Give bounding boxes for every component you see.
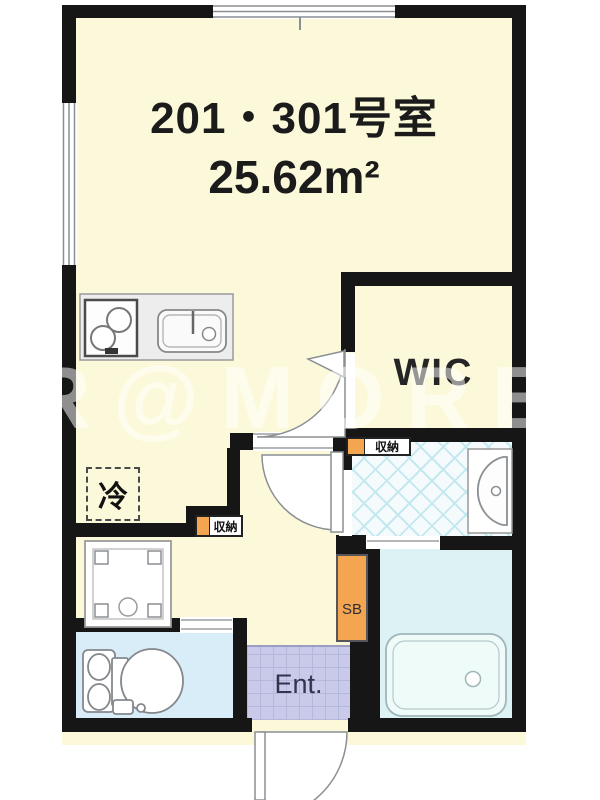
room-area-title: 25.62m² — [62, 150, 526, 204]
room-number-title: 201・301号室 — [62, 82, 526, 146]
bathtub-icon — [386, 634, 506, 716]
wic-label: WIC — [355, 348, 512, 398]
window-icon — [213, 4, 395, 30]
storage-label-upper: 収納 — [346, 437, 411, 456]
shoe-box: SB — [336, 554, 368, 642]
storage-label-lower: 収納 — [195, 515, 243, 537]
entrance-label: Ent. — [247, 666, 350, 702]
storage-text: 収納 — [210, 517, 241, 535]
door-swing-wic — [257, 349, 345, 437]
toilet-icon — [83, 649, 183, 714]
storage-text: 収納 — [365, 439, 409, 454]
door-swing-entry — [255, 732, 347, 800]
washing-machine-pan-icon — [85, 541, 171, 627]
storage-accent-block — [197, 517, 210, 535]
floor-plan: 201・301号室 25.62m² WIC Ent. SB 収納 収納 冷 R@… — [0, 0, 600, 800]
washbasin-icon — [468, 449, 512, 533]
door-swing-washroom — [262, 452, 343, 532]
storage-accent-block — [348, 439, 365, 454]
kitchen-counter-icon — [80, 294, 233, 360]
refrigerator-space: 冷 — [86, 467, 140, 521]
